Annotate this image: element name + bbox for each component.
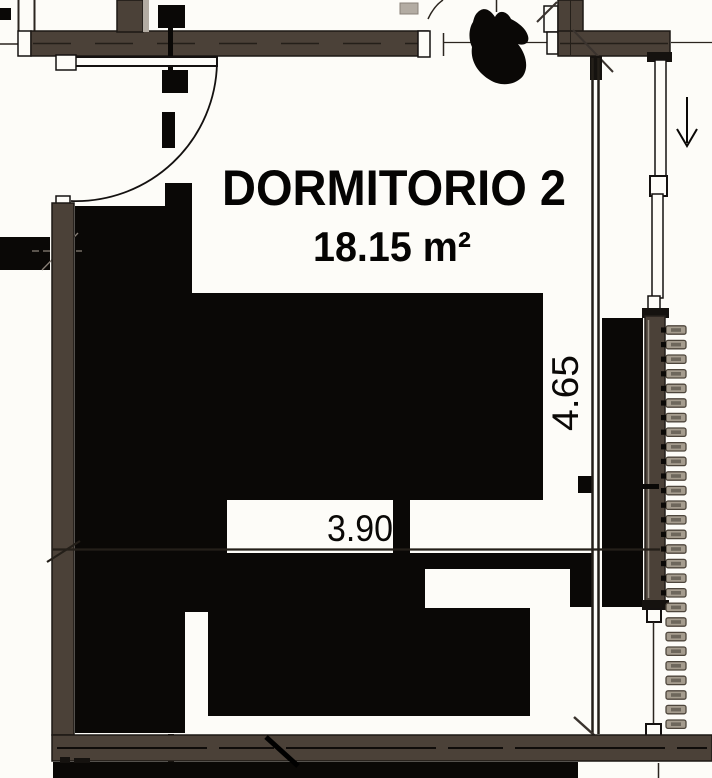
wall-left <box>52 196 74 735</box>
radiator-mid-tick <box>643 484 659 489</box>
door-hinge-plate <box>56 55 76 70</box>
radiator-valve-top <box>647 609 661 622</box>
room-area-label: 18.15 m² <box>313 223 471 270</box>
room-name-label: DORMITORIO 2 <box>222 160 566 216</box>
dimension-label-width: 3.90 <box>327 508 393 549</box>
door-leaf <box>75 57 217 66</box>
floor-plan: 3.90 4.65 DORMITORIO 2 18.15 m² <box>0 0 712 778</box>
dimension-label-height: 4.65 <box>545 355 586 431</box>
